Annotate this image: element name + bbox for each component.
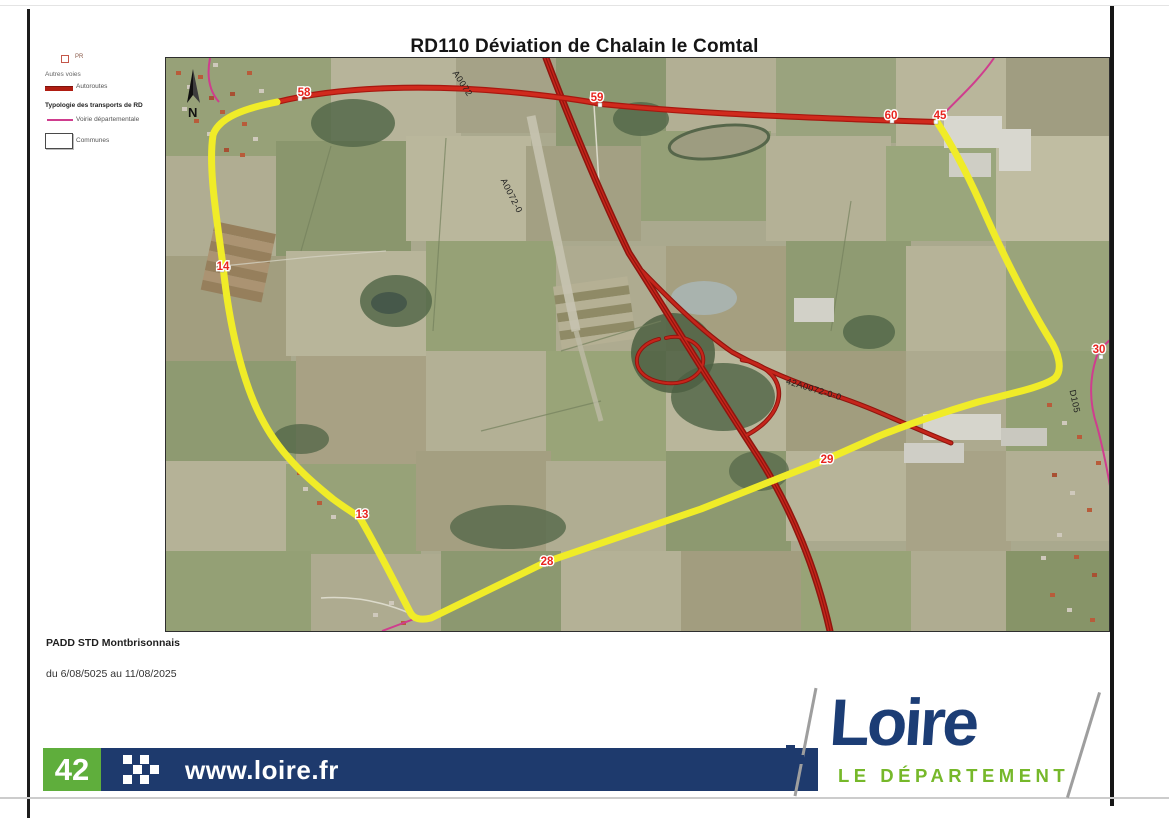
pr-marker: 13 (356, 509, 369, 521)
commune-swatch (45, 133, 73, 149)
pr-marker: 14 (217, 261, 230, 273)
pr-marker: 30 (1093, 344, 1106, 356)
aerial-map: 58 59 60 45 14 13 28 29 30 A0072 A0072-0… (165, 57, 1110, 632)
scanned-map-page: RD110 Déviation de Chalain le Comtal PR … (0, 0, 1169, 827)
website-bar: www.loire.fr (101, 748, 818, 791)
legend-autoroutes: Autoroutes (76, 83, 107, 90)
logo-slash-right (1066, 692, 1101, 798)
logo-title: Loire (827, 684, 979, 760)
legend-voirie-departementale: Voirie départementale (76, 116, 139, 123)
pr-marker: 60 (885, 110, 898, 122)
document-name: PADD STD Montbrisonnais (46, 637, 180, 649)
logo-pixel-icon (786, 765, 795, 774)
page-title: RD110 Déviation de Chalain le Comtal (0, 36, 1169, 58)
pr-marker: 28 (541, 556, 554, 568)
scan-edge-top (0, 5, 1169, 6)
pr-symbol-icon (61, 55, 69, 63)
pr-marker: 45 (934, 110, 947, 122)
logo-subtitle: LE DÉPARTEMENT (838, 765, 1069, 787)
north-letter: N (188, 105, 197, 120)
department-number-badge: 42 (43, 748, 101, 791)
logo-pixel-icon (795, 755, 804, 764)
legend-autres-voies: Autres voies (45, 71, 81, 78)
website-url: www.loire.fr (185, 755, 339, 786)
legend-pr-label: PR (75, 54, 83, 60)
autoroute-line-swatch (45, 86, 73, 91)
legend-heading: Typologie des transports de RD (45, 102, 143, 109)
pixel-chevrons-icon (123, 755, 163, 785)
pr-marker: 58 (298, 87, 311, 99)
pr-marker: 29 (821, 454, 834, 466)
logo-pixel-icon (786, 745, 795, 754)
pr-marker: 59 (591, 92, 604, 104)
loire-department-logo: Loire LE DÉPARTEMENT (780, 682, 1120, 800)
legend-communes: Communes (76, 137, 109, 144)
departementale-line-swatch (47, 119, 73, 121)
logo-slash-left (794, 688, 817, 796)
document-date-range: du 6/08/5025 au 11/08/2025 (46, 668, 177, 680)
scan-edge-left (27, 9, 30, 818)
